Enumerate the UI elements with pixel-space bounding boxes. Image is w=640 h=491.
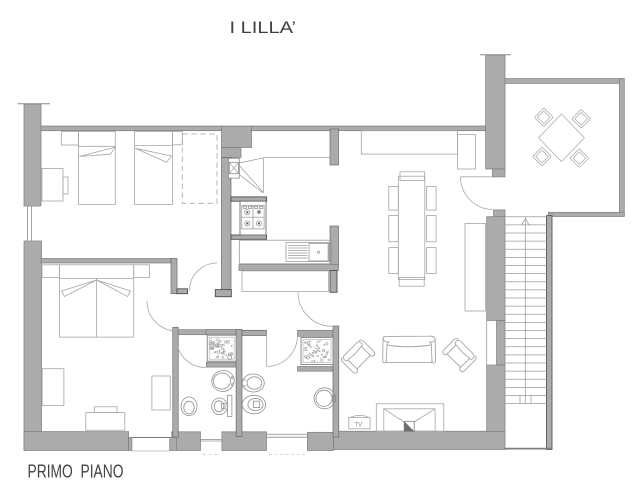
svg-text:I LILLA’: I LILLA’ — [230, 18, 297, 37]
svg-text:PRIMO PIANO: PRIMO PIANO — [28, 462, 124, 482]
svg-text:TV: TV — [355, 423, 363, 429]
